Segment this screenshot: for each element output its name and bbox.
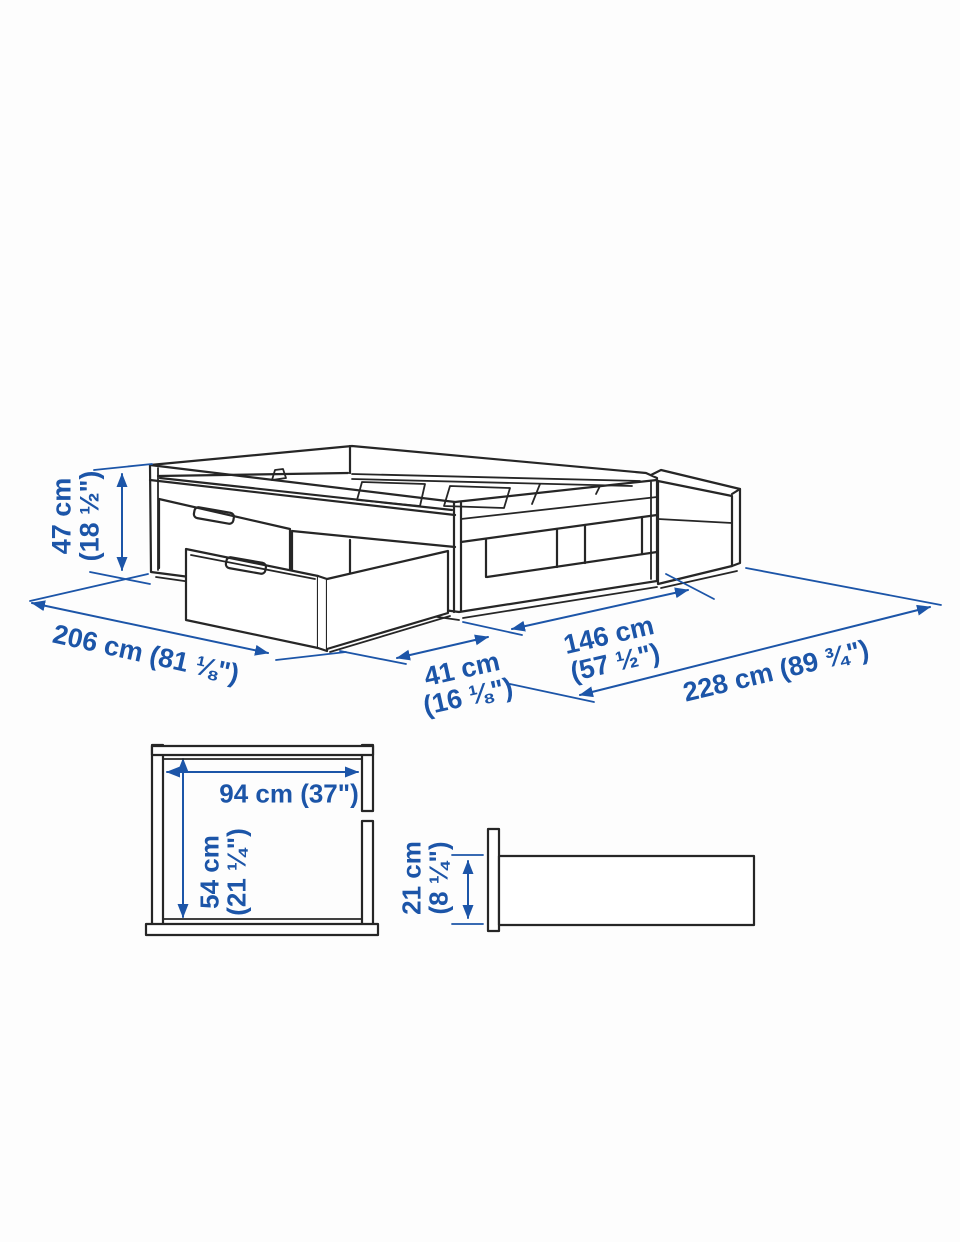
diagram-lineart (0, 0, 960, 1242)
dimension-label-21cm: 21 cm (8 ¼") (399, 841, 454, 915)
dimension-label-94cm: 94 cm (37") (219, 780, 359, 807)
side-view-drawer-body (499, 856, 754, 925)
frame-right-post-lower (362, 821, 373, 925)
dimension-label-54cm-metric: 54 cm (197, 828, 224, 915)
dim-228-tick-right (746, 568, 941, 605)
dimension-diagram-page: 47 cm (18 ½") 206 cm (81 ⅛") 41 cm (16 ⅛… (0, 0, 960, 1242)
dimension-label-21cm-metric: 21 cm (399, 841, 426, 915)
open-drawer-right-end (651, 470, 740, 588)
dimension-label-54cm-imperial: (21 ¼") (224, 828, 251, 915)
frame-left-post (152, 745, 163, 925)
dimension-label-47cm-metric: 47 cm (48, 471, 76, 562)
right-drawer-front-edge (732, 489, 740, 566)
dimension-label-47cm: 47 cm (18 ½") (48, 471, 105, 562)
dim-47-tick-top (94, 464, 152, 470)
dim-21-drawer-height (452, 855, 483, 924)
dim-41-tick-left (340, 651, 406, 664)
dimension-label-21cm-imperial: (8 ¼") (426, 841, 453, 915)
open-drawer-edge-strip (318, 576, 327, 651)
dim-206-extension-left (30, 574, 148, 601)
dimension-label-47cm-imperial: (18 ½") (76, 471, 104, 562)
frame-base-plinth (146, 924, 378, 935)
side-view-end-board (488, 829, 499, 931)
frame-top-rail (152, 746, 373, 755)
frame-front-view (146, 745, 378, 935)
dim-228-tick-left (510, 684, 594, 702)
drawer-side-view (488, 829, 754, 931)
dimension-label-54cm: 54 cm (21 ¼") (197, 828, 252, 915)
right-drawer-side (658, 481, 732, 584)
dim-47-tick-bottom (90, 572, 150, 584)
dim-206-tick-right (276, 652, 346, 660)
